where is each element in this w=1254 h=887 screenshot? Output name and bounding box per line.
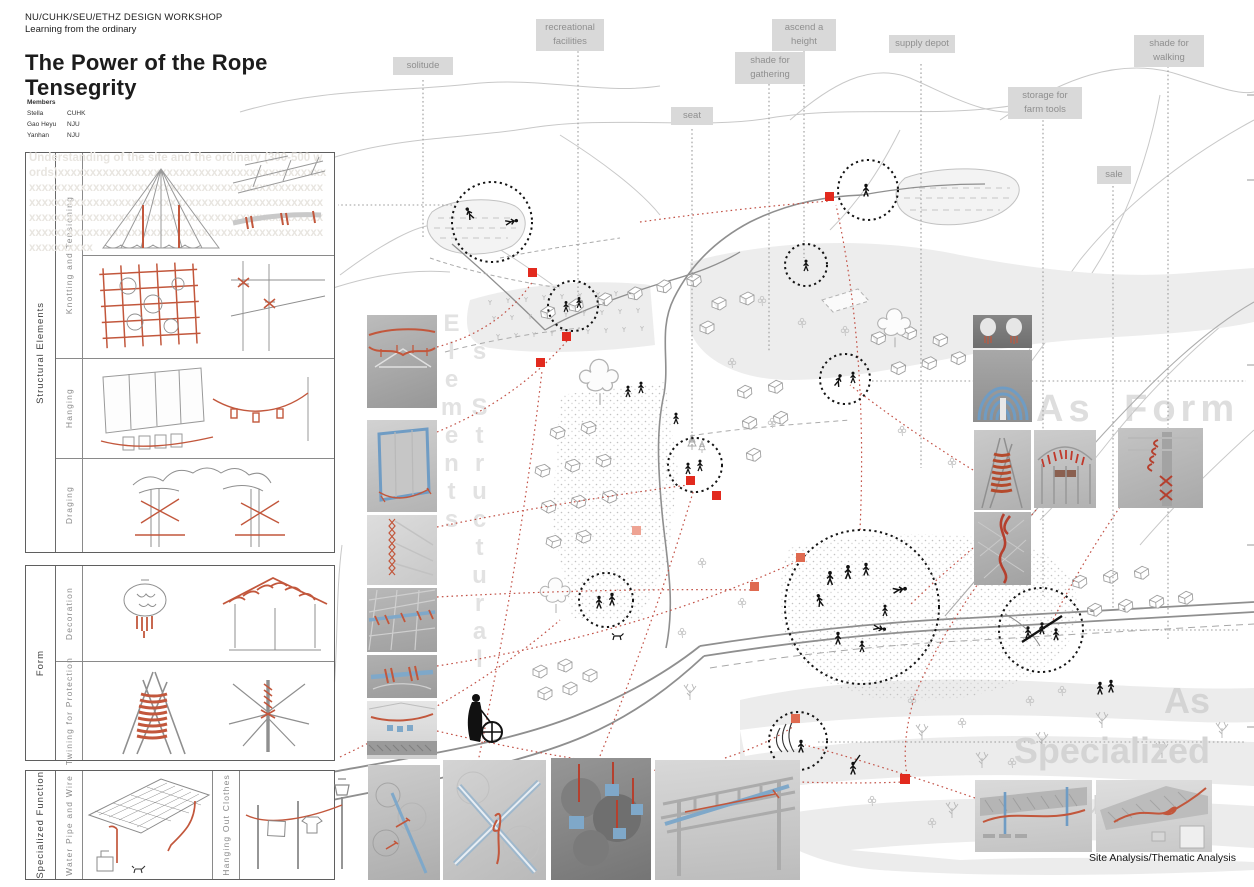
panel-specialized-function: Specialized Function Water Pipe and Wire xyxy=(25,770,335,880)
row-label-decoration: Decoration xyxy=(56,566,83,661)
photo-house-wire-blue-posts xyxy=(975,780,1092,852)
photo-white-building-red-rope xyxy=(367,701,437,759)
photo-pavilion-red-ropes xyxy=(367,315,437,408)
sketch-wrapped-tripod-and-joint xyxy=(83,662,334,760)
photo-tree-blue-tags-red-lines xyxy=(551,758,651,880)
sketch-tent-and-lashed-log xyxy=(83,153,334,256)
photo-blue-beam-red-wraps xyxy=(367,655,437,698)
poster-title: The Power of the Rope Tensegrity xyxy=(25,50,268,100)
photo-pergola-blue-beam xyxy=(655,760,800,880)
photo-lanterns xyxy=(973,315,1032,348)
sketch-hanging-board-and-lanterns xyxy=(83,359,334,458)
member-row: StellaCUHK xyxy=(27,110,43,117)
map-label-solitude: solitude xyxy=(393,57,453,75)
photo-garden-blue-pipe xyxy=(368,765,440,880)
panel-form: Form Decoration xyxy=(25,565,335,761)
row-label-hanging-out-clothes: Hanging Out Clothes xyxy=(213,771,240,879)
map-label-recreational-facilities: recreational facilities xyxy=(536,19,604,51)
group-label-specialized-function: Specialized Function xyxy=(26,771,56,879)
member-row: YanhanNJU xyxy=(27,132,49,139)
map-label-shade-for-gathering: shade for gathering xyxy=(735,52,805,84)
photo-red-laced-column xyxy=(1118,428,1203,508)
photo-blue-frame-board xyxy=(367,420,437,512)
row-label-twining-for-protection: Twining for Protection xyxy=(56,662,83,760)
map-label-shade-for-walking: shade for walking xyxy=(1134,35,1204,67)
edge-tick-marks xyxy=(1247,95,1254,727)
photo-blue-arch-tunnel xyxy=(973,350,1032,422)
sketch-lantern-and-thatched-hut xyxy=(83,566,334,661)
map-label-supply-depot: supply depot xyxy=(889,35,955,53)
photo-pavilion-red-fringe-roof xyxy=(1034,430,1096,508)
row-label-draging: Draging xyxy=(56,459,83,552)
poster-board: As Structural Elements As Form xyxy=(0,0,1254,887)
row-label-hanging: Hanging xyxy=(56,359,83,458)
member-row: Gao HeyuNJU xyxy=(27,121,56,128)
group-label-form: Form xyxy=(26,566,56,760)
sketch-lattice-and-bamboo xyxy=(83,256,334,358)
ponds xyxy=(427,169,1019,254)
sketch-vine-arch xyxy=(83,459,334,552)
photo-tent-red-lattice-pole xyxy=(367,515,437,585)
map-label-storage-for-farm-tools: storage for farm tools xyxy=(1008,87,1082,119)
sketch-clothesline xyxy=(240,771,334,879)
members-label: Members xyxy=(27,99,56,106)
person-with-bicycle xyxy=(468,694,502,742)
photo-crossed-poles-red-knot xyxy=(443,760,546,880)
map-label-sale: sale xyxy=(1097,166,1131,184)
photo-red-twining-rope xyxy=(974,512,1031,585)
sheet-caption: Site Analysis/Thematic Analysis xyxy=(1040,852,1236,864)
sketch-roof-water-pipe xyxy=(83,771,213,879)
photo-red-coil-wrapped-pole xyxy=(974,430,1031,510)
map-label-ascend-a-height: ascend a height xyxy=(772,19,836,51)
row-label-water-pipe-and-wire: Water Pipe and Wire xyxy=(56,771,83,879)
workshop-subtitle: Learning from the ordinary xyxy=(25,24,136,35)
panel-structural-elements: Understanding of the site and the ordina… xyxy=(25,152,335,553)
workshop-title: NU/CUHK/SEU/ETHZ DESIGN WORKSHOP xyxy=(25,12,222,23)
photo-bamboo-scaffold-lashings xyxy=(367,588,437,652)
map-label-seat: seat xyxy=(671,107,713,125)
photo-roof-red-looping-wire xyxy=(1096,780,1212,852)
